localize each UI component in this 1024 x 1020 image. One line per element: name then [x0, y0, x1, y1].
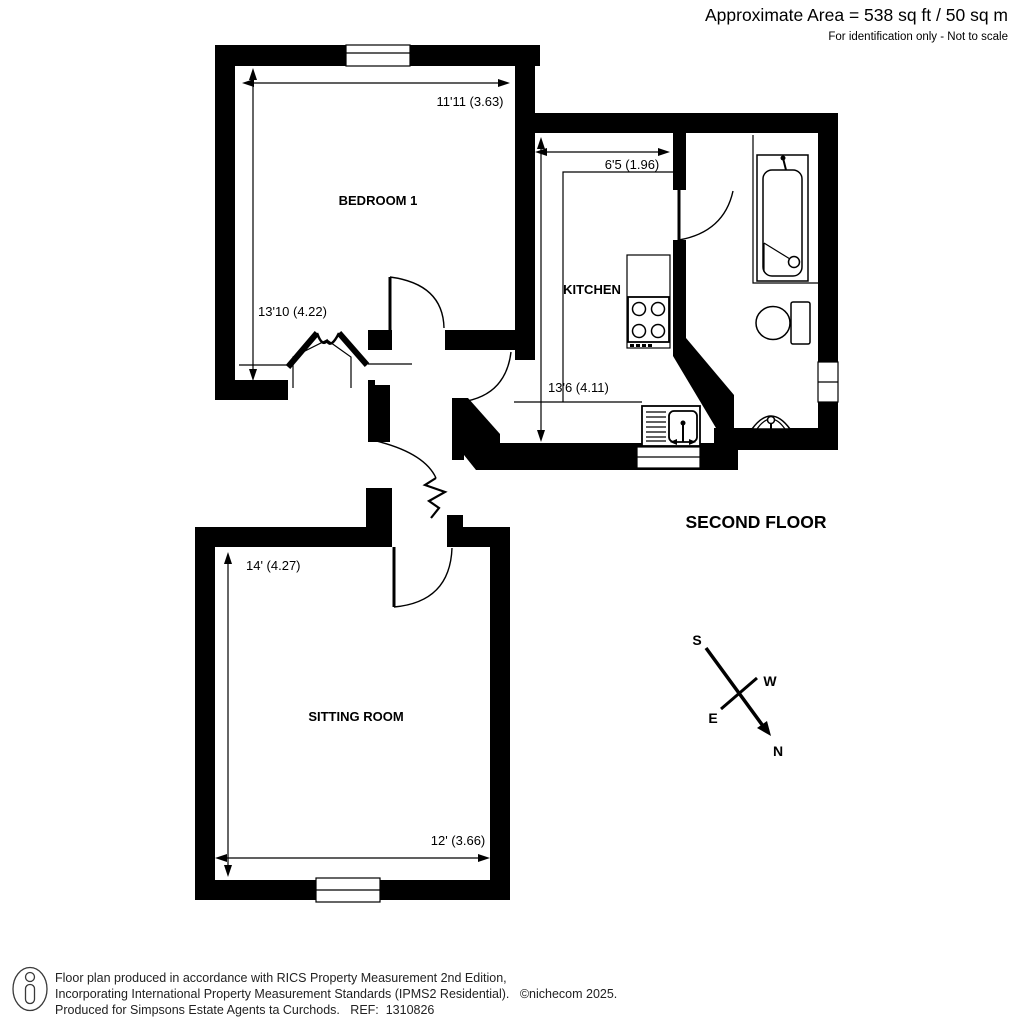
kitchen-label: KITCHEN — [563, 282, 621, 297]
kitchen-width-label: 6'5 (1.96) — [605, 157, 660, 172]
bathroom-door — [679, 190, 733, 240]
person-logo-icon — [13, 968, 47, 1011]
kitchen-door — [467, 352, 511, 401]
sitting-room-width-dimension — [215, 854, 490, 862]
kitchen-depth-label: 13'6 (4.11) — [548, 380, 609, 395]
sitting-room-label: SITTING ROOM — [308, 709, 403, 724]
hob-icon — [627, 255, 670, 348]
floor-title: SECOND FLOOR — [686, 512, 827, 532]
sink-icon — [642, 406, 700, 446]
sitting-room-width-label: 12' (3.66) — [431, 833, 486, 848]
disclaimer-label: For identification only - Not to scale — [828, 31, 1008, 43]
compass-south-label: S — [692, 632, 701, 648]
kitchen-width-dimension — [535, 148, 670, 156]
sitting-room-depth-dimension — [224, 552, 232, 877]
bedroom-depth-label: 13'10 (4.22) — [258, 304, 327, 319]
compass-icon: S W E N — [692, 632, 783, 759]
footer-line-3: Produced for Simpsons Estate Agents ta C… — [55, 1003, 434, 1017]
compass-north-label: N — [773, 743, 783, 759]
bedroom-width-label: 11'11 (3.63) — [436, 94, 503, 109]
compass-west-label: W — [763, 673, 777, 689]
bathroom-window-icon — [818, 362, 838, 402]
toilet-icon — [756, 302, 810, 344]
kitchen-window-icon — [637, 447, 700, 468]
approximate-area-label: Approximate Area = 538 sq ft / 50 sq m — [705, 5, 1008, 25]
sitting-room-window-icon — [316, 878, 380, 902]
bedroom-label: BEDROOM 1 — [339, 193, 418, 208]
floor-plan-page: Approximate Area = 538 sq ft / 50 sq m F… — [0, 0, 1024, 1020]
compass-east-label: E — [708, 710, 717, 726]
sitting-room-depth-label: 14' (4.27) — [246, 558, 301, 573]
footer-line-1: Floor plan produced in accordance with R… — [55, 971, 507, 985]
footer-line-2: Incorporating International Property Mea… — [55, 987, 617, 1001]
kitchen-depth-dimension — [537, 137, 545, 442]
bedroom-door — [390, 277, 444, 330]
walls — [195, 45, 838, 900]
bedroom-depth-dimension — [249, 68, 257, 381]
floor-plan: Approximate Area = 538 sq ft / 50 sq m F… — [0, 0, 1024, 1020]
bath-icon — [753, 135, 818, 283]
bedroom-window-icon — [346, 45, 410, 66]
bedroom-width-dimension — [242, 79, 510, 87]
sitting-room-door — [394, 547, 452, 607]
